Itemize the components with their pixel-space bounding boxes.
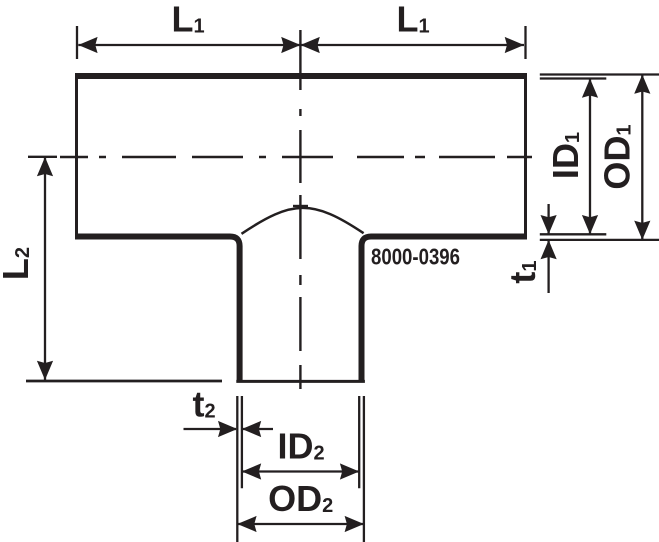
svg-text:L1: L1	[171, 0, 204, 40]
svg-text:ID2: ID2	[277, 426, 324, 467]
svg-text:t1: t1	[502, 260, 543, 283]
svg-text:L2: L2	[0, 247, 36, 280]
svg-text:ID1: ID1	[545, 132, 586, 179]
svg-text:OD2: OD2	[268, 478, 333, 519]
svg-text:t2: t2	[193, 384, 216, 425]
svg-text:8000-0396: 8000-0396	[371, 244, 460, 270]
svg-text:OD1: OD1	[597, 124, 638, 189]
svg-text:L1: L1	[396, 0, 429, 40]
